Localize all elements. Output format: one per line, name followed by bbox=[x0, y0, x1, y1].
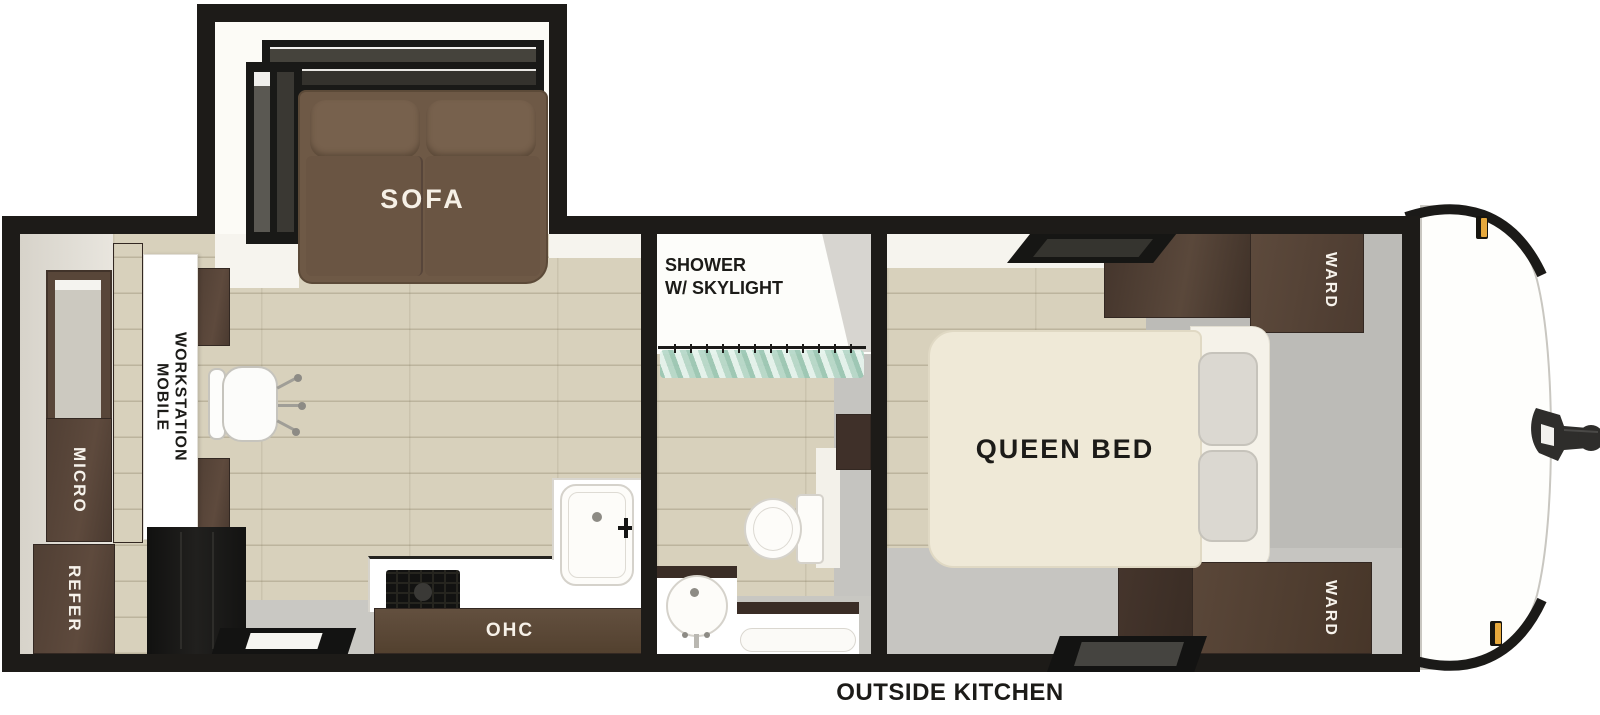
shower-curtain-glass bbox=[660, 350, 864, 378]
cabinet-seam bbox=[212, 532, 214, 649]
living-ceiling-strip bbox=[549, 234, 648, 258]
toilet-bowl bbox=[744, 498, 802, 560]
mobile-workstation-desk: MOBILE WORKSTATION bbox=[143, 254, 198, 540]
wardrobe-bottom: WARD bbox=[1192, 562, 1372, 654]
outside-kitchen-label: OUTSIDE KITCHEN bbox=[820, 679, 1080, 707]
hitch-coupler bbox=[1531, 408, 1600, 461]
shower: SHOWER W/ SKYLIGHT bbox=[657, 234, 871, 354]
cabinet-seam bbox=[180, 532, 182, 649]
bathroom-wall-right bbox=[871, 234, 887, 654]
bathroom-handle bbox=[704, 632, 710, 638]
vanity-wing-top-edge bbox=[737, 602, 859, 614]
slideout-top-window bbox=[262, 40, 544, 92]
chair-caster bbox=[294, 374, 302, 382]
microwave-label: MICRO bbox=[69, 447, 89, 514]
window-pane bbox=[277, 72, 294, 232]
kitchen-faucet bbox=[592, 512, 602, 522]
wall-right-front bbox=[1402, 216, 1420, 672]
outside-kitchen-hatch-pane bbox=[1074, 642, 1184, 666]
kitchen-ohc-label: OHC bbox=[486, 620, 534, 642]
window-glass bbox=[55, 280, 101, 420]
shower-curtain-hooks bbox=[660, 344, 864, 353]
slideout-wall-top bbox=[197, 4, 567, 22]
kitchen-faucet-handle-bar bbox=[618, 526, 632, 530]
sofa-back-pillow bbox=[310, 100, 420, 158]
chair-caster bbox=[298, 402, 306, 410]
mobile-workstation-label: MOBILE WORKSTATION bbox=[153, 332, 189, 462]
entry-step-mat-inner bbox=[245, 633, 322, 649]
office-chair bbox=[200, 360, 310, 450]
kitchen-sink bbox=[560, 484, 634, 586]
chair-leg bbox=[278, 404, 300, 407]
living-window bbox=[46, 270, 112, 432]
overhead-cabinet bbox=[196, 458, 230, 536]
microwave: MICRO bbox=[46, 418, 112, 542]
sofa-back-pillow bbox=[426, 100, 536, 158]
sofa-seat-cushion bbox=[425, 156, 540, 276]
window-pane bbox=[270, 47, 536, 62]
shower-label: SHOWER W/ SKYLIGHT bbox=[665, 254, 783, 299]
sofa-label: SOFA bbox=[298, 184, 548, 215]
slideout-side-window bbox=[246, 62, 302, 244]
overhead-cabinet bbox=[196, 268, 230, 346]
front-cap-body bbox=[1421, 206, 1551, 669]
sink-basin-line bbox=[568, 492, 626, 578]
wall-top-right-segment bbox=[549, 216, 1402, 234]
rv-floorplan: SOFA MOBILE WORKSTATION MICRO RE bbox=[0, 0, 1600, 715]
bath-mat bbox=[740, 628, 856, 652]
entry-step-mat bbox=[212, 628, 356, 654]
queen-bed-label: QUEEN BED bbox=[976, 434, 1155, 465]
slideout-wall-right bbox=[549, 4, 567, 234]
bathroom-sink-basin bbox=[666, 575, 728, 637]
tall-cabinet bbox=[113, 243, 143, 543]
chair-leg bbox=[276, 377, 295, 389]
bathroom-cabinet bbox=[836, 414, 871, 470]
bed-pillow bbox=[1198, 352, 1258, 446]
bedroom-skylight-pane bbox=[1033, 239, 1153, 257]
slideout-wall-left bbox=[197, 4, 215, 234]
bathroom-handle bbox=[682, 632, 688, 638]
window-pane bbox=[254, 72, 270, 232]
cooktop bbox=[386, 570, 460, 612]
front-cap bbox=[1390, 185, 1600, 695]
wall-left-rear bbox=[2, 216, 20, 672]
kitchen-overhead-cabinet: OHC bbox=[374, 608, 646, 654]
cooktop-burner bbox=[414, 583, 432, 601]
wardrobe-bottom-label: WARD bbox=[1225, 580, 1339, 637]
sofa-seat-cushion bbox=[306, 156, 423, 276]
toilet-seat-line bbox=[753, 507, 793, 551]
bathroom-wall-left bbox=[641, 216, 657, 654]
marker-light-top bbox=[1476, 216, 1488, 239]
sofa: SOFA bbox=[298, 90, 548, 284]
bed-pillow bbox=[1198, 450, 1258, 542]
refrigerator: REFER bbox=[33, 544, 115, 654]
marker-light-bottom bbox=[1490, 621, 1502, 646]
wardrobe-top: WARD bbox=[1250, 227, 1364, 333]
refrigerator-label: REFER bbox=[64, 565, 84, 633]
bathroom-faucet bbox=[690, 588, 699, 597]
shower-corner-wall bbox=[805, 234, 871, 352]
chair-seat bbox=[222, 366, 278, 442]
wardrobe-top-label: WARD bbox=[1275, 252, 1339, 309]
wall-top-left-segment bbox=[2, 216, 215, 234]
chair-caster bbox=[292, 428, 300, 436]
window-pane bbox=[270, 69, 536, 85]
queen-bed-mattress: QUEEN BED bbox=[928, 330, 1202, 568]
bathroom-faucet-stem bbox=[694, 634, 699, 648]
